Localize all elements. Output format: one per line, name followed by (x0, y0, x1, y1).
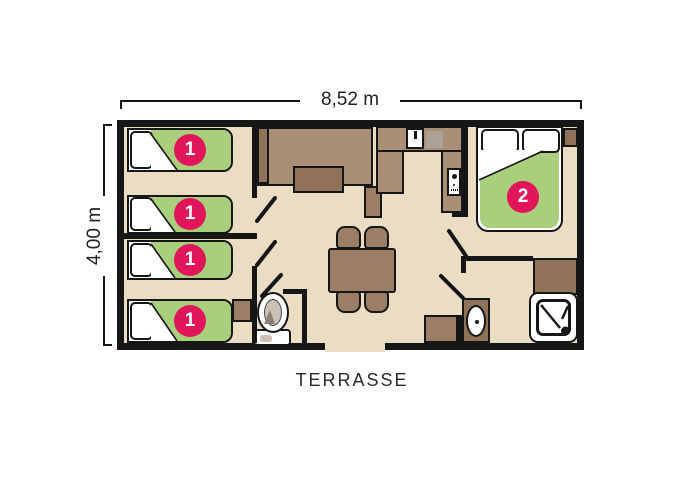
shower-tray (536, 299, 571, 336)
sofa-arm (257, 127, 269, 184)
entry-cabinet (424, 315, 458, 343)
chair (336, 226, 361, 249)
bedroom1-badge: 1 (174, 244, 206, 276)
corner-shelf (563, 128, 578, 147)
dimension-tick-right (580, 100, 582, 109)
wall-hallway-upper (252, 127, 257, 198)
shower (529, 292, 578, 343)
dimension-tick-top (103, 124, 112, 126)
flush-button-icon (260, 335, 272, 342)
wall-toilet-right (302, 289, 307, 343)
pillow (130, 197, 153, 231)
floorplan-canvas: 8,52 m 4,00 m (0, 0, 700, 500)
wall-master-bathroom-divider (461, 256, 533, 261)
bedroom1-badge: 1 (174, 305, 206, 337)
pillow (481, 129, 519, 153)
dining-table (328, 248, 396, 293)
pillow (130, 302, 153, 340)
terrace-label: TERRASSE (252, 370, 452, 392)
wall-bathroom-lower (458, 315, 463, 343)
height-dimension-label: 4,00 m (84, 196, 106, 276)
bedroom1-badge: 1 (174, 198, 206, 230)
washbasin (466, 305, 486, 337)
wall-bedroom-divider (124, 233, 257, 239)
fridge-small-dot-icon (453, 184, 455, 186)
kitchen-sink (406, 128, 424, 149)
chair (364, 291, 389, 313)
faucet-icon (414, 131, 417, 139)
wall-kitchen-master (463, 126, 468, 217)
wall-bathroom-stub-upper (461, 261, 466, 273)
coffee-table (293, 166, 344, 193)
dimension-tick-bottom (103, 344, 112, 346)
kitchen-counter-left (376, 150, 404, 194)
fridge (447, 168, 461, 196)
bedside-cabinet (232, 299, 252, 322)
stove (426, 131, 443, 148)
pillow (130, 243, 153, 277)
terrace-door-opening (325, 341, 385, 352)
dimension-tick-left (120, 100, 122, 109)
pillow (522, 129, 560, 153)
chair (336, 291, 361, 313)
wall-hallway-lower (252, 266, 257, 343)
washbasin-vanity (462, 298, 490, 343)
toilet-bowl (257, 292, 289, 333)
bedroom2-badge: 2 (507, 181, 539, 213)
wardrobe (533, 258, 578, 295)
chair (364, 226, 389, 249)
wall-kitchen-stub (452, 212, 468, 217)
fridge-dot-icon (452, 174, 457, 179)
pillow (130, 131, 153, 169)
faucet-dot-icon (475, 320, 479, 324)
width-dimension-label: 8,52 m (300, 89, 400, 111)
toilet-bowl-inner (264, 299, 282, 326)
fridge-vents-icon (451, 189, 458, 191)
bedroom1-badge: 1 (174, 134, 206, 166)
